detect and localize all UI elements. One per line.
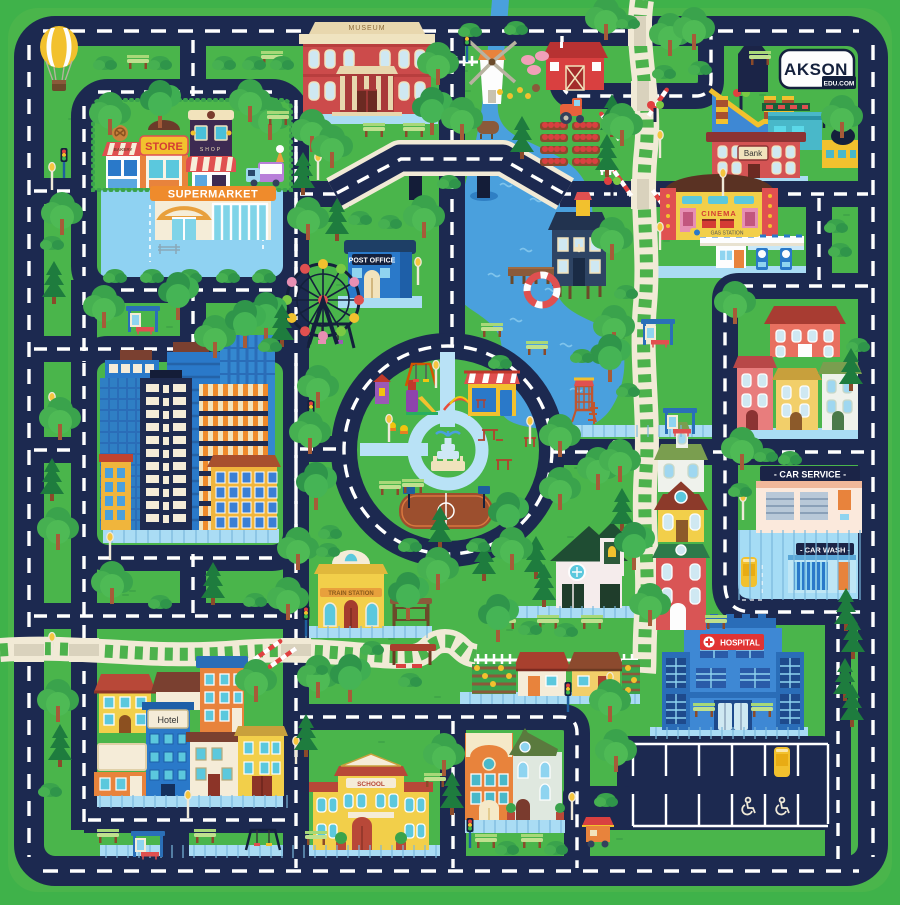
svg-text:MUSEUM: MUSEUM	[348, 25, 385, 32]
svg-text:CINEMA: CINEMA	[701, 209, 737, 218]
svg-text:HOSPITAL: HOSPITAL	[720, 639, 760, 648]
svg-text:TRAIN STATION: TRAIN STATION	[328, 591, 373, 597]
svg-text:SUPERMARKET: SUPERMARKET	[168, 189, 258, 201]
svg-text:- CAR SERVICE -: - CAR SERVICE -	[774, 470, 846, 480]
svg-text:BAKERY: BAKERY	[114, 147, 133, 152]
svg-text:Bank: Bank	[744, 149, 763, 158]
svg-text:SCHOOL: SCHOOL	[357, 781, 385, 788]
svg-text:SHOP: SHOP	[200, 147, 222, 153]
svg-text:EDU.COM: EDU.COM	[824, 81, 855, 88]
svg-text:- CAR WASH -: - CAR WASH -	[800, 546, 850, 555]
svg-text:GAS STATION: GAS STATION	[711, 231, 744, 237]
svg-text:Hotel: Hotel	[157, 715, 178, 725]
svg-text:STORE: STORE	[145, 141, 183, 153]
svg-text:POST OFFICE: POST OFFICE	[349, 258, 396, 265]
